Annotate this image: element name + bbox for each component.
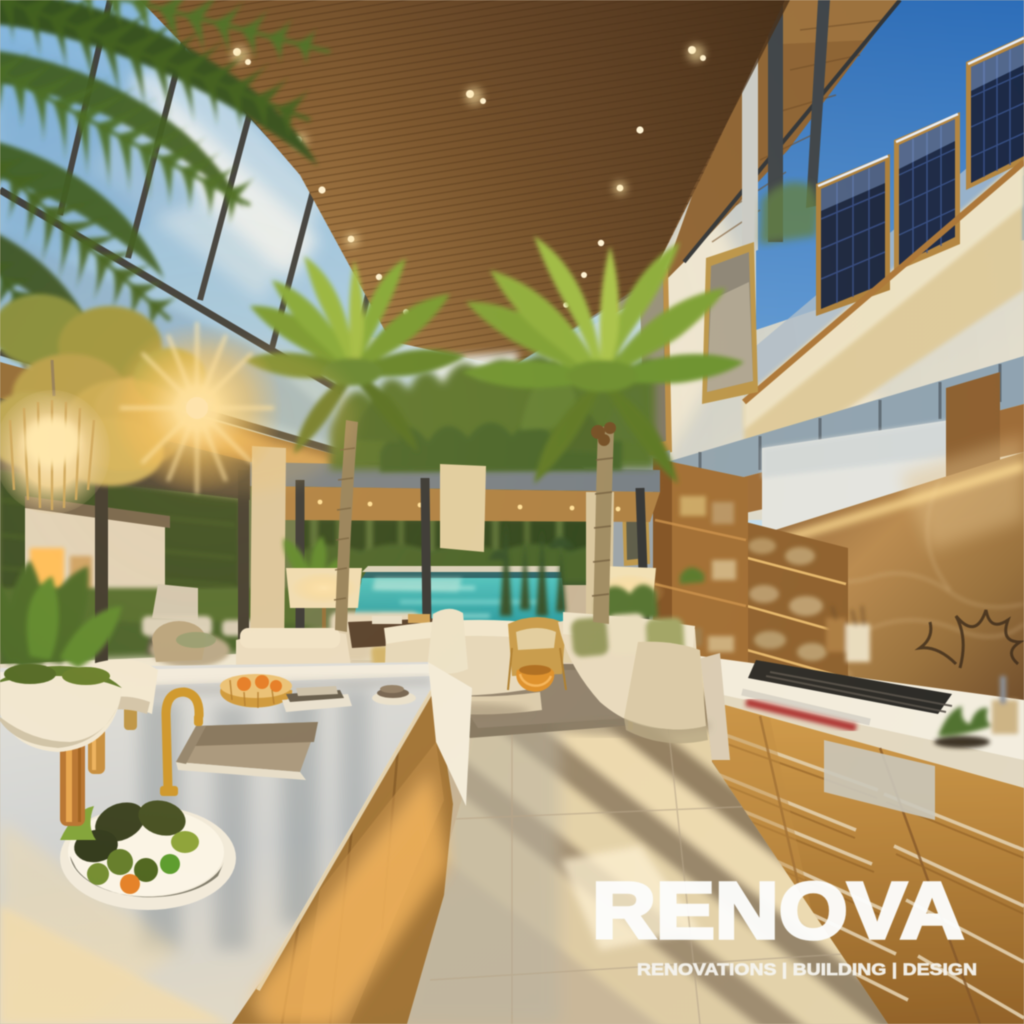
svg-text:RENOVATIONS | BUILDING | DESIG: RENOVATIONS | BUILDING | DESIGN [637,960,977,979]
svg-text:RENOVA: RENOVA [592,866,964,955]
